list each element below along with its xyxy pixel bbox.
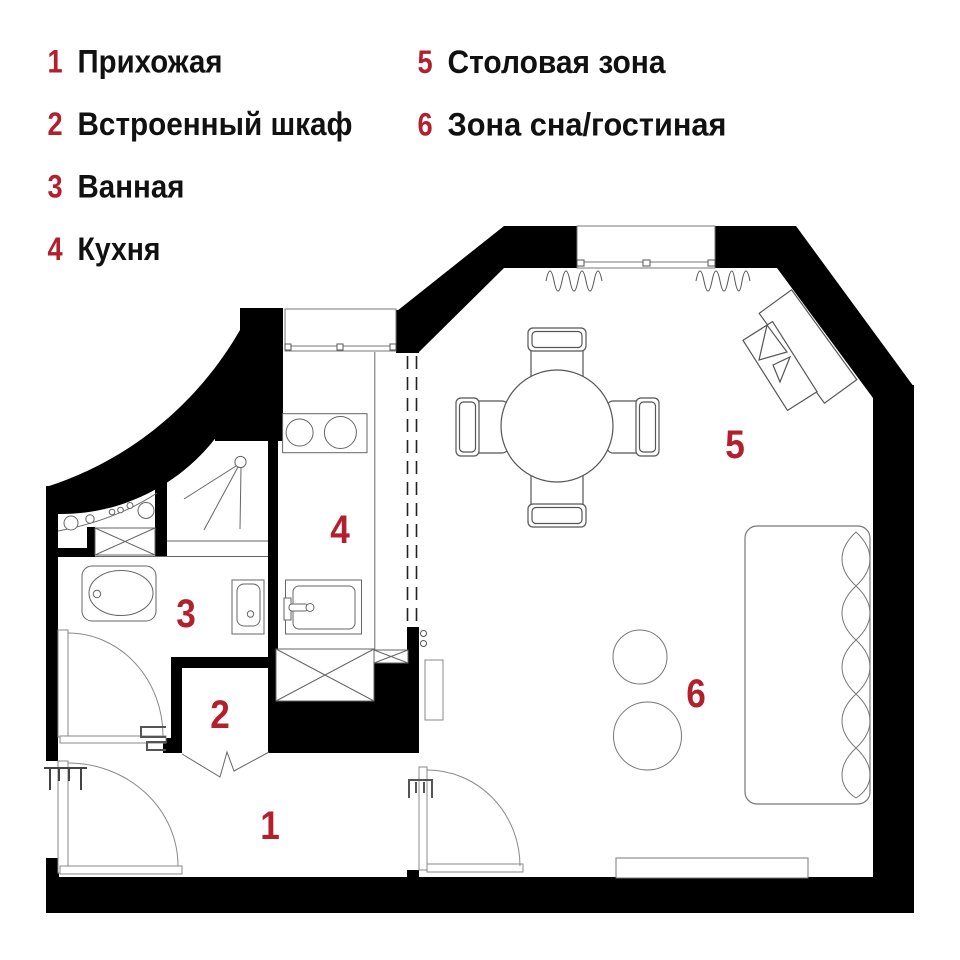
svg-text:6: 6	[686, 671, 706, 716]
svg-text:2: 2	[47, 107, 62, 143]
svg-text:4: 4	[47, 232, 63, 268]
svg-text:Зона сна/гостиная: Зона сна/гостиная	[448, 108, 727, 143]
svg-text:2: 2	[210, 692, 230, 737]
svg-text:4: 4	[330, 507, 350, 552]
svg-text:Столовая зона: Столовая зона	[448, 46, 667, 81]
svg-text:1: 1	[47, 44, 62, 80]
svg-text:3: 3	[176, 591, 196, 636]
svg-text:1: 1	[260, 803, 280, 848]
svg-text:5: 5	[417, 45, 432, 81]
svg-text:3: 3	[47, 169, 62, 205]
svg-text:6: 6	[417, 107, 432, 143]
svg-text:Встроенный шкаф: Встроенный шкаф	[78, 108, 353, 143]
svg-text:Ванная: Ванная	[78, 170, 185, 205]
svg-text:Кухня: Кухня	[78, 233, 161, 268]
svg-text:5: 5	[725, 422, 745, 467]
svg-text:Прихожая: Прихожая	[78, 45, 223, 80]
